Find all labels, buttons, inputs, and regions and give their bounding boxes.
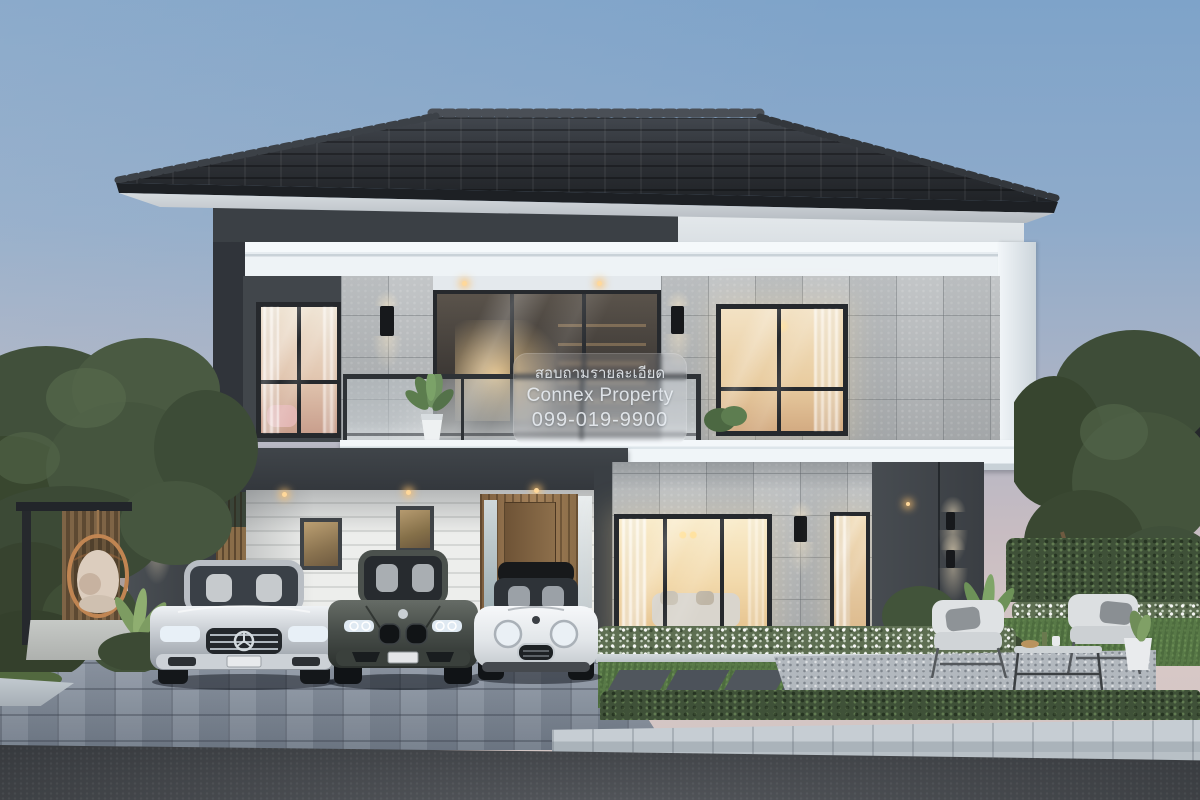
- narrow-window: [830, 512, 870, 640]
- downlight: [406, 490, 411, 495]
- outdoor-furniture-set: [918, 586, 1168, 698]
- watermark-phone: 099-019-9900: [532, 407, 669, 433]
- balcony-plant-right: [700, 400, 752, 442]
- wall-sconce-upper-right: [671, 306, 684, 334]
- downlight: [534, 488, 539, 493]
- downlight: [906, 502, 910, 506]
- watermark-brand: Connex Property: [526, 384, 673, 408]
- bedroom-window-left: [256, 302, 342, 438]
- architectural-render-scene: สอบถามรายละเอียด Connex Property 099-019…: [0, 0, 1200, 800]
- watermark-card: สอบถามรายละเอียด Connex Property 099-019…: [513, 353, 687, 445]
- outdoor-armchair-left: [932, 600, 1006, 678]
- dark-coupe-car: [326, 548, 480, 692]
- watermark-thai-line: สอบถามรายละเอียด: [535, 365, 665, 384]
- wall-sconce-balcony: [380, 306, 394, 336]
- framed-art-window: [396, 506, 434, 552]
- balcony-soffit: [433, 276, 663, 290]
- main-hip-roof: [100, 95, 1085, 235]
- cushion: [696, 591, 714, 605]
- downlight: [282, 492, 287, 497]
- railing-post: [343, 374, 347, 442]
- wall-sconce-lower-right: [794, 516, 807, 542]
- foreground-hedge: [600, 690, 1200, 720]
- pendant-lights: [675, 527, 701, 543]
- white-mini-car: [468, 560, 604, 686]
- mini-sconce: [946, 512, 955, 530]
- balcony-potted-plant: [395, 374, 469, 444]
- pergola-post: [22, 511, 31, 645]
- downlight: [462, 281, 467, 286]
- living-room-window: [614, 514, 772, 640]
- curtain: [323, 307, 335, 433]
- fascia-band-horizontal: [232, 242, 1032, 278]
- downlight: [597, 281, 602, 286]
- silver-sedan-car: [148, 556, 340, 692]
